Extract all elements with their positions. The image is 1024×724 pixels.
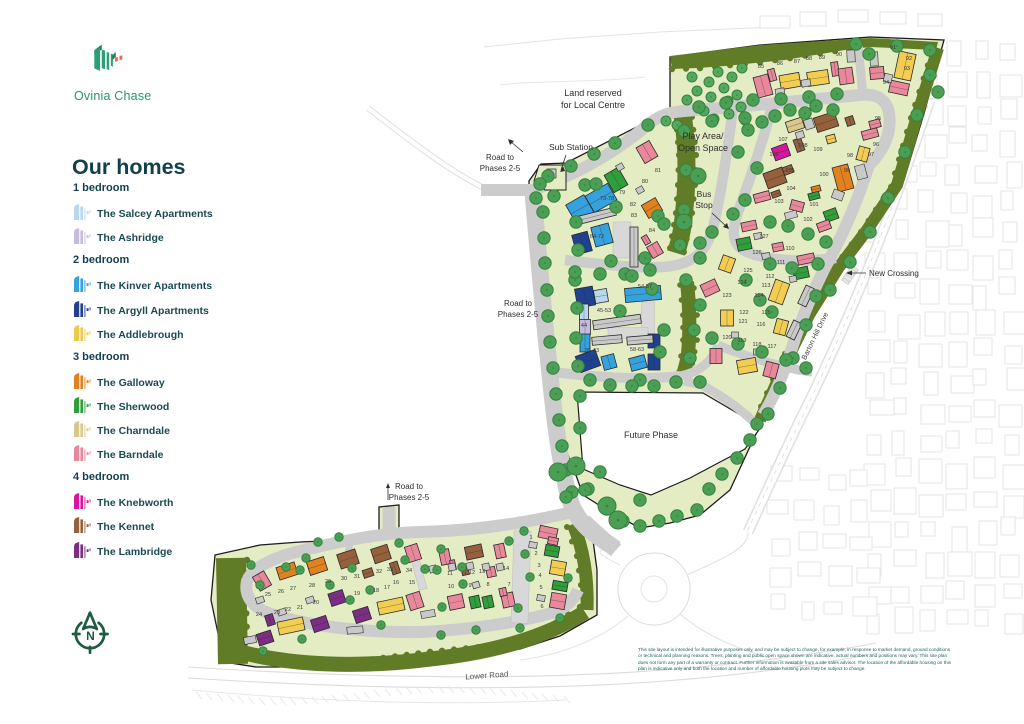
svg-text:83: 83 [631,213,637,219]
svg-text:64-72: 64-72 [590,234,604,240]
svg-text:98: 98 [847,153,853,159]
svg-text:90: 90 [836,52,842,58]
svg-text:80: 80 [642,179,648,185]
svg-text:105: 105 [785,168,794,174]
svg-text:116: 116 [757,322,766,328]
svg-text:Road to: Road to [486,153,515,162]
svg-text:127: 127 [759,234,768,240]
svg-text:18: 18 [373,588,379,594]
svg-text:112: 112 [766,274,775,280]
svg-text:114: 114 [755,293,764,299]
svg-text:96: 96 [873,142,879,148]
svg-text:Stop: Stop [695,200,713,210]
svg-text:100: 100 [819,172,828,178]
svg-text:87: 87 [794,59,800,65]
svg-text:89: 89 [819,55,825,61]
svg-text:82: 82 [630,202,636,208]
svg-text:Phases 2-5: Phases 2-5 [498,310,539,319]
svg-text:85: 85 [758,64,764,70]
svg-text:44: 44 [581,323,587,329]
svg-text:126: 126 [752,250,761,256]
svg-text:7: 7 [507,582,510,588]
svg-text:91: 91 [890,45,896,51]
svg-text:21: 21 [297,605,303,611]
svg-text:93: 93 [904,66,910,72]
svg-text:26: 26 [278,589,284,595]
svg-text:16: 16 [393,580,399,586]
svg-text:106: 106 [769,152,778,158]
svg-text:45-53: 45-53 [597,308,611,314]
svg-text:New Crossing: New Crossing [869,269,919,278]
svg-text:Bus: Bus [697,189,712,199]
svg-text:17: 17 [384,585,390,591]
svg-text:N: N [86,629,95,643]
svg-text:99: 99 [844,168,850,174]
svg-text:for Local Centre: for Local Centre [561,100,625,110]
svg-text:27: 27 [290,586,296,592]
svg-text:121: 121 [738,319,747,325]
svg-text:20: 20 [313,600,319,606]
svg-text:102: 102 [803,217,812,223]
svg-text:12: 12 [469,570,475,576]
svg-text:35-43: 35-43 [585,348,599,354]
svg-text:Road to: Road to [395,482,424,491]
svg-text:103: 103 [774,199,783,205]
svg-text:125: 125 [743,268,752,274]
svg-text:33: 33 [387,567,393,573]
svg-text:101: 101 [809,202,818,208]
svg-text:81: 81 [655,168,661,174]
svg-text:2: 2 [534,551,537,557]
svg-text:6: 6 [540,604,543,610]
svg-text:109: 109 [813,147,822,153]
svg-text:30: 30 [341,576,347,582]
svg-text:73-78: 73-78 [600,196,614,202]
svg-text:54-57: 54-57 [638,284,652,290]
svg-text:104: 104 [786,186,795,192]
svg-text:Open Space: Open Space [678,143,728,153]
svg-text:111: 111 [777,260,786,266]
svg-text:10: 10 [448,584,454,590]
svg-text:22: 22 [285,607,291,613]
svg-text:28: 28 [309,583,315,589]
svg-text:86: 86 [777,61,783,67]
svg-text:Sub Station: Sub Station [549,142,593,152]
svg-text:58-63: 58-63 [630,347,644,353]
svg-text:97: 97 [868,152,874,158]
svg-text:29: 29 [325,579,331,585]
svg-text:117: 117 [768,344,777,350]
svg-text:8: 8 [486,582,489,588]
svg-text:123: 123 [722,293,731,299]
svg-text:79: 79 [619,190,625,196]
svg-text:19: 19 [354,591,360,597]
svg-text:3: 3 [537,563,540,569]
svg-text:24: 24 [256,612,262,618]
svg-text:95: 95 [875,116,881,122]
svg-text:Play Area/: Play Area/ [682,131,724,141]
svg-text:Lower Road: Lower Road [465,670,509,682]
svg-text:9: 9 [468,583,471,589]
svg-text:4: 4 [538,573,541,579]
svg-text:25: 25 [265,592,271,598]
svg-text:124: 124 [737,280,746,286]
svg-text:120: 120 [722,335,731,341]
svg-text:11: 11 [447,571,453,577]
svg-text:14: 14 [503,566,509,572]
svg-text:Future Phase: Future Phase [624,430,678,440]
svg-text:110: 110 [786,246,795,252]
svg-text:Phases 2-5: Phases 2-5 [480,164,521,173]
svg-text:1: 1 [529,535,532,541]
svg-text:88: 88 [806,56,812,62]
svg-text:108: 108 [798,143,807,149]
svg-text:118: 118 [753,342,762,348]
svg-text:92: 92 [906,56,912,62]
svg-text:23: 23 [274,610,280,616]
svg-text:94: 94 [883,80,889,86]
svg-text:Land reserved: Land reserved [564,88,622,98]
svg-text:84: 84 [649,228,655,234]
svg-text:13: 13 [479,569,485,575]
svg-text:34: 34 [406,568,412,574]
svg-text:115: 115 [762,310,771,316]
svg-text:Phases 2-5: Phases 2-5 [389,493,430,502]
svg-text:107: 107 [778,137,787,143]
svg-text:15: 15 [409,580,415,586]
svg-text:32: 32 [376,569,382,575]
svg-text:122: 122 [739,310,748,316]
svg-text:113: 113 [762,283,771,289]
svg-text:31: 31 [354,574,360,580]
svg-text:5: 5 [539,585,542,591]
svg-text:119: 119 [738,338,747,344]
svg-text:Road to: Road to [504,299,533,308]
